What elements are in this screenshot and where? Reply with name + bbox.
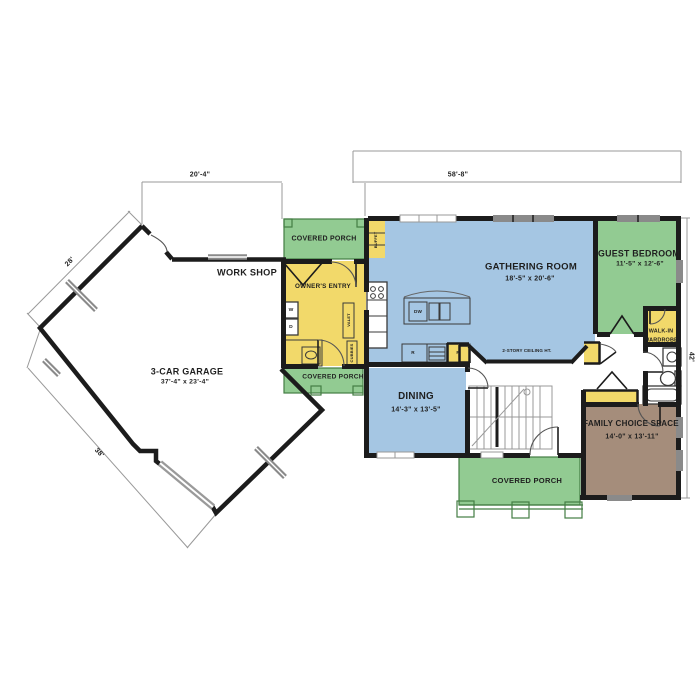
covered-porch-bottom-label: COVERED PORCH bbox=[492, 477, 562, 485]
washer-label: W bbox=[288, 308, 293, 313]
workshop-label: WORK SHOP bbox=[217, 268, 277, 277]
dim-top-left: 20'-4" bbox=[190, 172, 211, 179]
family-space-label: FAMILY CHOICE SPACE bbox=[583, 420, 679, 428]
family-space-size: 14'-0" x 13'-11" bbox=[605, 434, 658, 441]
covered-porch-top-label: COVERED PORCH bbox=[291, 236, 356, 243]
buffet-label: BUFFET bbox=[374, 232, 378, 249]
dining-label: DINING bbox=[398, 392, 434, 402]
covered-porch-middle-label: COVERED PORCH bbox=[302, 375, 364, 382]
window bbox=[607, 495, 632, 501]
toilet-bowl bbox=[661, 372, 676, 386]
family-space-fill bbox=[583, 404, 678, 497]
floor-plan: 20'-4" 58'-8" 42' 28' 38' 3-CAR GARAGE 3… bbox=[0, 0, 700, 700]
window bbox=[400, 215, 456, 222]
valet-label: VALET bbox=[347, 313, 351, 326]
cubbies-label: CUBBIES bbox=[350, 344, 354, 363]
kitchen-gathering-fill bbox=[367, 221, 595, 347]
gathering-room-label: GATHERING ROOM bbox=[485, 262, 577, 272]
window bbox=[676, 260, 683, 283]
ceiling-note: 2-STORY CEILING HT. bbox=[502, 349, 551, 353]
dim-right: 42' bbox=[688, 352, 695, 362]
garage-label: 3-CAR GARAGE bbox=[151, 368, 224, 377]
staircase bbox=[469, 386, 552, 449]
family-closet-fill bbox=[584, 391, 637, 403]
pantry-label: P bbox=[456, 351, 459, 356]
dishwasher-label: DW bbox=[414, 310, 422, 315]
dining-size: 14'-3" x 13'-5" bbox=[391, 407, 441, 414]
garage-size-label: 37'-4" x 23'-4" bbox=[161, 380, 209, 387]
tall-cabinets bbox=[367, 282, 387, 348]
guest-bedroom-label: GUEST BEDROOM bbox=[598, 250, 680, 259]
window bbox=[493, 215, 554, 222]
dryer-label: D bbox=[289, 325, 293, 330]
wardrobe-label-line2: WARDROBE bbox=[644, 337, 678, 342]
gathering-room-size: 18'-5" x 20'-6" bbox=[505, 276, 555, 283]
guest-bedroom-size: 11'-5" x 12'-6" bbox=[616, 262, 664, 269]
wardrobe-label-line1: WALK-IN bbox=[649, 328, 673, 333]
range-label: R bbox=[411, 351, 414, 356]
window bbox=[481, 452, 503, 458]
owners-entry-label: OWNER'S ENTRY bbox=[295, 284, 351, 290]
window bbox=[676, 450, 683, 471]
bathroom-fixtures bbox=[643, 348, 681, 404]
dim-top-right: 58'-8" bbox=[448, 172, 469, 179]
